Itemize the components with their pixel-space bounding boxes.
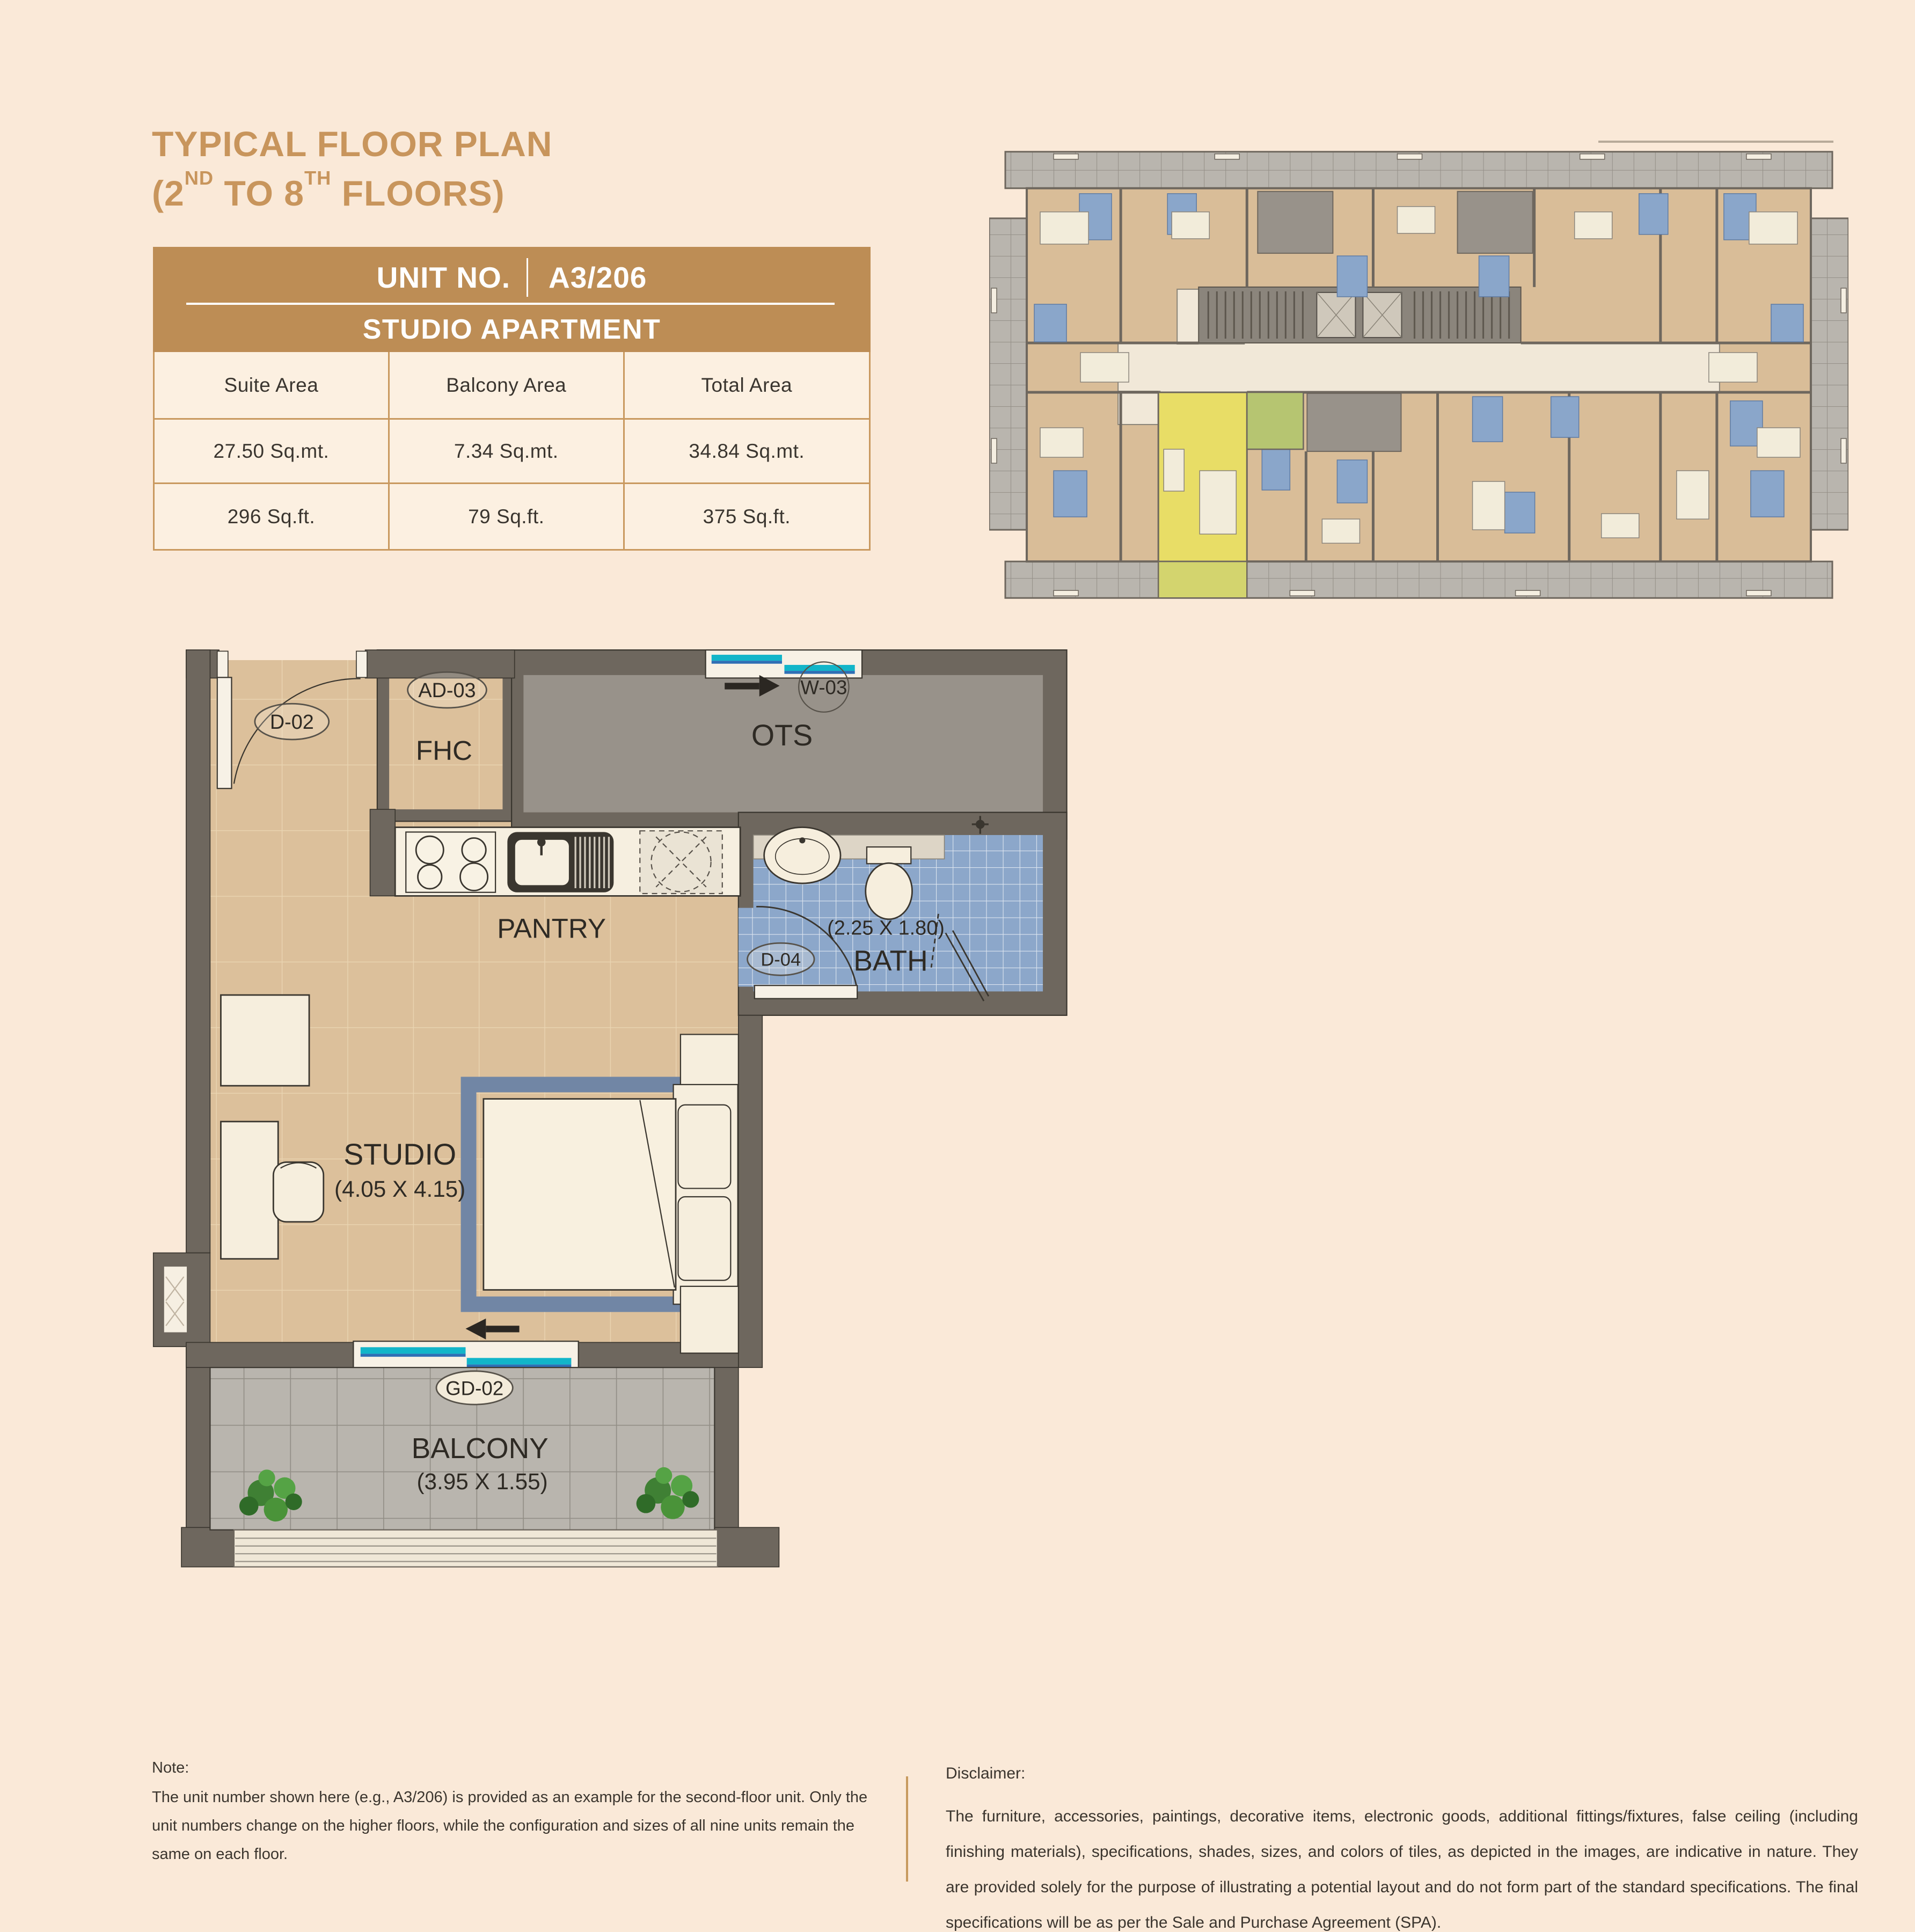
balcony-area-sqft: 79 Sq.ft. [390, 482, 625, 549]
bed [484, 1099, 676, 1290]
studio-dim-label: (4.05 X 4.15) [334, 1176, 465, 1202]
page-title-line1: TYPICAL FLOOR PLAN [152, 122, 552, 165]
total-area-sqmt: 34.84 Sq.mt. [625, 418, 869, 482]
prep-area [640, 831, 722, 894]
suite-area-sqft: 296 Sq.ft. [155, 482, 390, 549]
studio-label: STUDIO [343, 1138, 456, 1171]
keyplan-top-rule [1598, 141, 1833, 143]
bath-label: BATH [853, 945, 927, 977]
disclaimer-heading: Disclaimer: [946, 1756, 1858, 1791]
suite-area-sqmt: 27.50 Sq.mt. [155, 418, 390, 482]
washbasin-icon [764, 828, 840, 884]
bath-door-tag: D-04 [761, 950, 801, 970]
disclaimer-section: Disclaimer: The furniture, accessories, … [946, 1756, 1858, 1932]
bath-dim-label: (2.25 X 1.80) [827, 917, 945, 940]
balcony-label: BALCONY [412, 1433, 549, 1465]
nightstand [681, 1034, 739, 1084]
col-header-suite: Suite Area [155, 352, 390, 418]
unit-info-table: UNIT NO. A3/206 STUDIO APARTMENT Suite A… [153, 247, 871, 551]
note-body: The unit number shown here (e.g., A3/206… [152, 1789, 867, 1863]
unit-type-label: STUDIO APARTMENT [153, 310, 871, 349]
page-title-line2: (2ND TO 8TH FLOORS) [152, 165, 552, 215]
entry-door-tag: D-02 [270, 711, 314, 734]
stove-icon [406, 832, 495, 892]
unit-no-value: A3/206 [549, 260, 647, 295]
cabinet [221, 995, 309, 1086]
fhc-label: FHC [416, 735, 472, 766]
pantry-label: PANTRY [497, 913, 606, 943]
balcony-dim-label: (3.95 X 1.55) [416, 1469, 547, 1494]
total-area-sqft: 375 Sq.ft. [625, 482, 869, 549]
brochure-page: TYPICAL FLOOR PLAN (2ND TO 8TH FLOORS) U… [0, 0, 1915, 1932]
pillow [678, 1105, 730, 1189]
key-plan [989, 148, 1848, 602]
keyplan-ots-right [1458, 192, 1533, 253]
window-tag: W-03 [800, 676, 847, 698]
chair [273, 1162, 323, 1222]
ots-label: OTS [751, 719, 813, 752]
pantry-counter [395, 828, 740, 896]
unit-floor-plan: D-02 AD-03 FHC W-03 OTS PANTRY (2.25 X 1… [150, 633, 1073, 1739]
keyplan-ots-left [1258, 192, 1333, 253]
desk [221, 1122, 278, 1259]
ots-window [706, 650, 862, 678]
pillow [678, 1197, 730, 1280]
page-title: TYPICAL FLOOR PLAN (2ND TO 8TH FLOORS) [152, 122, 552, 215]
header-rule [186, 303, 835, 305]
keyplan-ots-lower [1307, 393, 1401, 451]
balcony-area-sqmt: 7.34 Sq.mt. [390, 418, 625, 482]
toilet-icon [866, 847, 912, 919]
side-cabinet [681, 1286, 739, 1353]
sink-icon [507, 832, 613, 892]
balcony-window [353, 1341, 578, 1371]
unit-number-row: UNIT NO. A3/206 [153, 254, 871, 301]
unit-table-body: Suite Area Balcony Area Total Area 27.50… [153, 352, 871, 551]
balcony-door-tag: GD-02 [445, 1377, 503, 1399]
col-header-balcony: Balcony Area [390, 352, 625, 418]
header-separator [527, 258, 528, 297]
col-header-total: Total Area [625, 352, 869, 418]
footer-divider [906, 1776, 908, 1882]
unit-no-label: UNIT NO. [377, 260, 510, 295]
note-section: Note: The unit number shown here (e.g., … [152, 1754, 876, 1869]
ac-duct-tag: AD-03 [418, 679, 476, 702]
unit-table-header: UNIT NO. A3/206 STUDIO APARTMENT [153, 247, 871, 352]
duct-niche [164, 1266, 187, 1333]
note-heading: Note: [152, 1754, 876, 1782]
disclaimer-body: The furniture, accessories, paintings, d… [946, 1799, 1858, 1932]
